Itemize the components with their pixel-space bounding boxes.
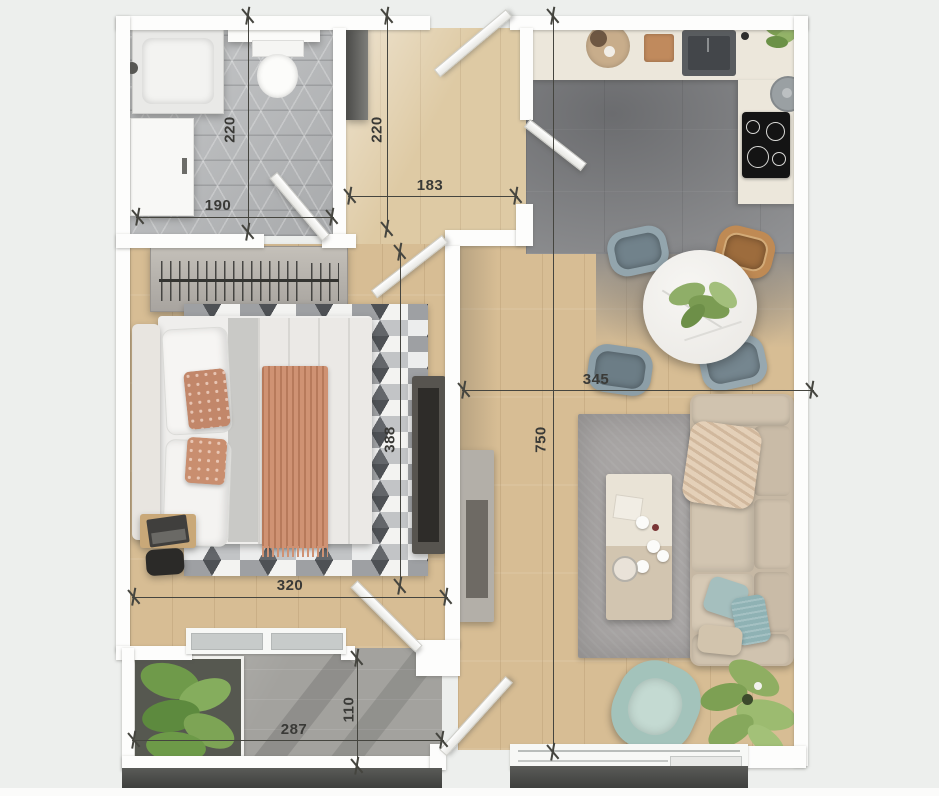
tick [340, 186, 360, 206]
burner-icon-1 [746, 120, 760, 134]
berry-bowl [652, 524, 659, 531]
balcony-outer-band [122, 768, 442, 788]
tick [347, 756, 367, 776]
dimline-balcony-width [132, 740, 444, 741]
vanity-handle-icon [182, 158, 187, 174]
faucet-icon [741, 32, 749, 40]
tick [802, 380, 822, 400]
dim-bathroom-height: 220 [223, 106, 238, 154]
dim-bedroom-height: 388 [383, 416, 398, 464]
cup-3 [657, 550, 669, 562]
dimline-living-width [462, 390, 814, 391]
tick [124, 587, 144, 607]
tick [454, 380, 474, 400]
tick [506, 186, 526, 206]
sofa-pillow-beige [697, 624, 744, 656]
tick [543, 742, 563, 762]
tick [543, 6, 563, 26]
glass-teapot [612, 556, 638, 582]
dimline-bathroom-width [136, 217, 334, 218]
accent-pillow-terracotta-1 [183, 368, 231, 430]
bed-gray-blanket [228, 318, 262, 542]
balcony-rail-left [122, 648, 134, 770]
sofa-throw-blanket [681, 419, 764, 510]
floor-plan: 220 190 220 183 345 388 750 320 110 287 [0, 0, 939, 796]
shower-tray [132, 28, 224, 114]
tick [238, 6, 258, 26]
burner-icon-3 [747, 146, 769, 168]
tick [322, 207, 342, 227]
wardrobe [150, 246, 348, 312]
laptop-icon [146, 514, 190, 547]
tv-console-living [458, 450, 494, 622]
cooktop [742, 112, 790, 178]
window-glass-right [271, 633, 343, 650]
tv-screen [418, 388, 439, 542]
hall-cabinet [346, 20, 368, 120]
tick [347, 648, 367, 668]
stool [145, 548, 185, 577]
wardrobe-rail-icon [159, 279, 339, 282]
sink-basin [688, 36, 730, 70]
living-plant-pot [742, 694, 753, 705]
laptop-keyboard [151, 529, 186, 545]
hangers-group-3 [311, 263, 339, 301]
tv-bedroom [412, 376, 446, 554]
shower-tray-inner [142, 38, 214, 104]
cutting-board [644, 34, 674, 62]
tick [377, 219, 397, 239]
living-window-outer-band [510, 766, 748, 788]
tick [238, 222, 258, 242]
tick [432, 730, 452, 750]
tick [124, 730, 144, 750]
sink-drain-icon [707, 38, 709, 52]
living-plant-flower [754, 682, 762, 690]
kitchen-sink [682, 30, 736, 76]
sofa-seat-cushion-2 [692, 500, 754, 572]
dim-hallway-height: 220 [370, 106, 385, 154]
dim-apartment-depth: 750 [534, 416, 549, 464]
dimline-bedroom-height [400, 250, 401, 588]
dark-bowl [590, 30, 607, 47]
pot-lid-knob [782, 88, 792, 98]
dimline-hallway-height [387, 14, 388, 232]
wall-living-bottom-right-stub [744, 746, 806, 768]
bedroom-balcony-window [186, 628, 346, 654]
accent-pillow-terracotta-2 [184, 437, 227, 486]
sofa-back-cushion-2 [754, 499, 790, 569]
tick [377, 6, 397, 26]
burner-icon-4 [772, 152, 786, 166]
dim-bedroom-width: 320 [266, 578, 314, 593]
console-dark-top [466, 500, 488, 598]
burner-icon-2 [766, 122, 785, 141]
tick [436, 587, 456, 607]
wall-hall-right-upper [520, 28, 533, 120]
tick [390, 576, 410, 596]
tick [128, 207, 148, 227]
window-sill-line-2 [518, 760, 668, 762]
sofa [690, 394, 794, 666]
headboard [132, 324, 160, 540]
dim-balcony-width: 287 [270, 722, 318, 737]
small-bowl [604, 46, 615, 57]
bottom-margin [0, 788, 939, 796]
dimline-bedroom-width [132, 597, 448, 598]
knit-throw [262, 366, 328, 548]
tick [390, 242, 410, 262]
throw-fringe [262, 546, 328, 557]
dimline-bathroom-height [248, 14, 249, 234]
coffee-table [606, 474, 672, 620]
dimline-hallway-width [348, 196, 518, 197]
dim-balcony-depth: 110 [342, 686, 357, 734]
dimline-apartment-depth [553, 14, 554, 754]
dim-hallway-width: 183 [406, 178, 454, 193]
dim-bathroom-width: 190 [194, 198, 242, 213]
cup-1 [636, 516, 649, 529]
dim-living-width: 345 [572, 372, 620, 387]
wall-left [116, 16, 130, 652]
window-glass-left [191, 633, 263, 650]
cup-4 [636, 560, 649, 573]
toilet-bowl [257, 54, 298, 98]
wall-hall-right-lower [516, 204, 533, 246]
